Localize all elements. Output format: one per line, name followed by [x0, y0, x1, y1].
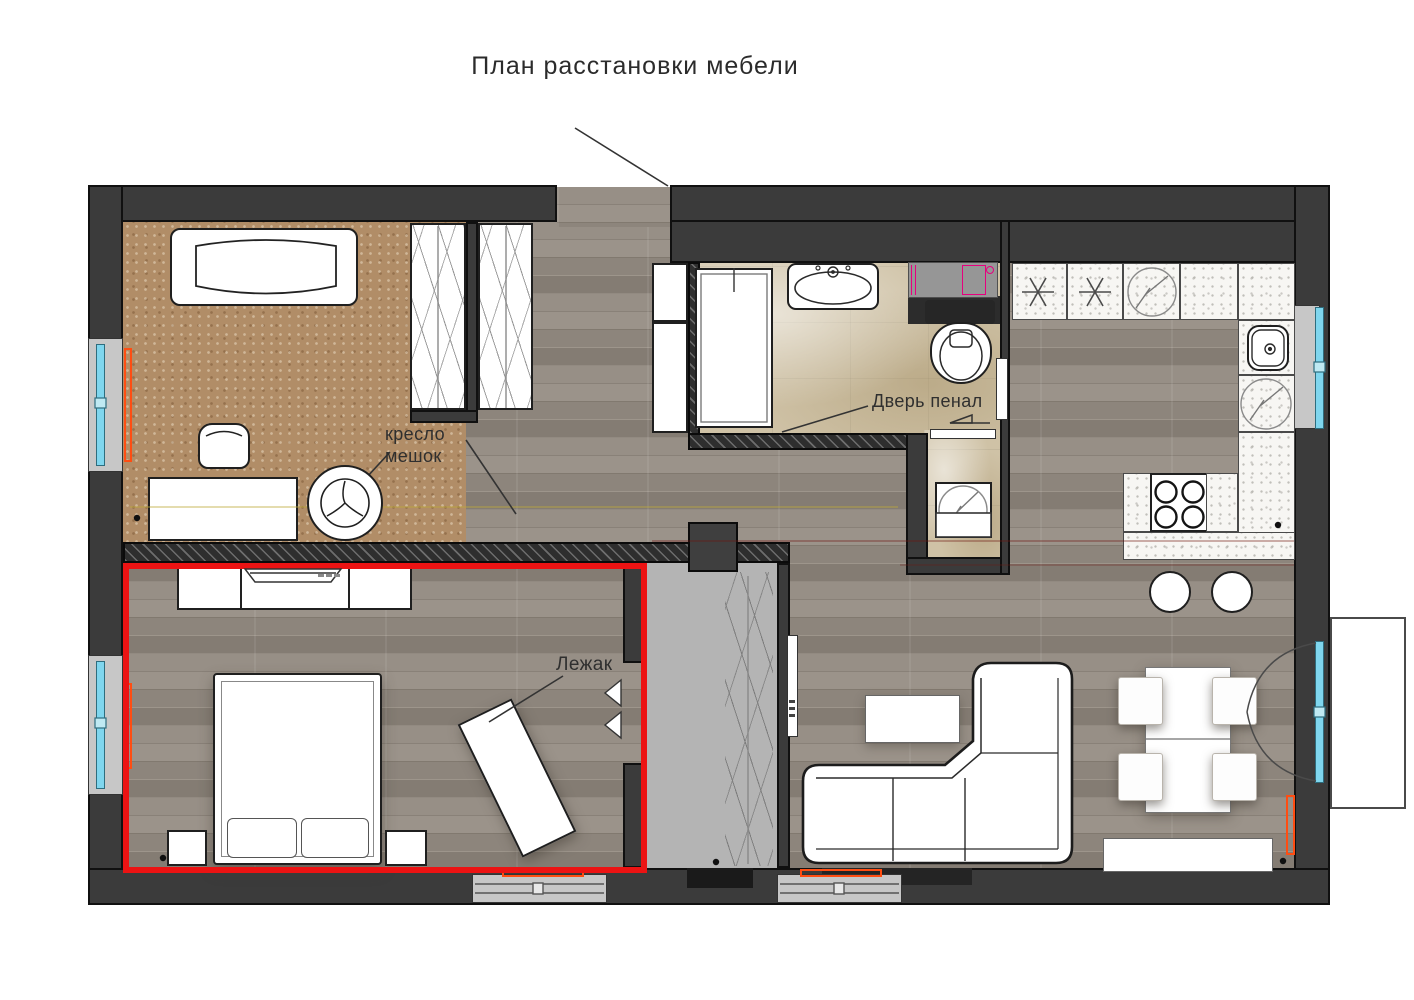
bar-stool-2: [1211, 571, 1253, 613]
bathroom-entry-door-panel: [996, 358, 1008, 420]
bottom-window-bedroom: [472, 874, 607, 903]
wall-bottom-closet-stub: [687, 868, 753, 888]
bean-bag-label: кресло мешок: [385, 424, 445, 468]
kitchen-counter-top-4: [1180, 263, 1238, 320]
dining-chair-4: [1212, 753, 1257, 801]
wall-tv: [787, 635, 798, 737]
wardrobe-hallway: [478, 223, 533, 410]
kitchen-counter-appliance: [1123, 263, 1180, 320]
dining-chair-2: [1212, 677, 1257, 725]
wall-bathroom-bottom: [688, 433, 918, 450]
kitchen-counter-stove-right: [1206, 473, 1238, 532]
office-chair: [198, 423, 250, 469]
wall-right: [1294, 185, 1330, 905]
bottom-radiator-living: [800, 869, 882, 877]
bar-stool-1: [1149, 571, 1191, 613]
page-title: План расстановки мебели: [455, 52, 815, 81]
office-sofa: [170, 228, 358, 306]
balcony: [1330, 617, 1406, 809]
bean-bag-label-line2: мешок: [385, 446, 445, 468]
closet-hanger-hatch: [725, 572, 773, 866]
sideboard: [1103, 838, 1273, 872]
wall-office-wardrobe-stub: [410, 410, 478, 423]
wall-niche-bottom: [906, 557, 1010, 575]
wall-office-right: [466, 222, 478, 423]
dining-chair-3: [1118, 753, 1163, 801]
entry-doorway-floor: [557, 187, 670, 227]
kitchen-window-glass: [1315, 307, 1324, 429]
structural-pillar: [688, 522, 738, 572]
floor-plan: План расстановки мебели кресло мешок Две…: [0, 0, 1414, 1000]
hall-cabinet-upper: [652, 263, 688, 322]
wall-niche-left: [906, 433, 928, 575]
kitchen-counter-fridge: [1012, 263, 1067, 320]
plumbing-valve: [986, 266, 994, 274]
dining-chair-1: [1118, 677, 1163, 725]
kitchen-counter-oven-unit: [1238, 375, 1295, 432]
washing-machine: [935, 482, 992, 538]
coffee-table: [865, 695, 960, 743]
pocket-door-label: Дверь пенал: [872, 391, 983, 413]
title-leader-line: [575, 128, 668, 186]
office-radiator: [124, 348, 132, 462]
living-radiator: [1286, 795, 1295, 855]
pocket-door-panel: [930, 429, 996, 439]
kitchen-counter-bottom-strip: [1123, 532, 1295, 560]
balcony-door-glass: [1315, 641, 1324, 783]
office-window-glass: [96, 344, 105, 466]
toilet-tank: [925, 300, 995, 324]
wall-top-left: [88, 185, 557, 222]
bottom-window-living: [777, 874, 902, 903]
stove: [1150, 473, 1208, 532]
bedroom-highlight-outline: [123, 563, 647, 873]
kitchen-counter-freezer: [1067, 263, 1123, 320]
bedroom-window-sill: [88, 655, 123, 795]
hall-cabinet-lower: [652, 322, 688, 433]
plumbing-box: [962, 265, 986, 295]
bean-bag-label-line1: кресло: [385, 424, 445, 446]
bedroom-window-glass: [96, 661, 105, 789]
kitchen-counter-stove-left: [1123, 473, 1152, 532]
kitchen-counter-top-5: [1238, 263, 1295, 320]
wardrobe-office: [410, 223, 466, 410]
office-window-sill: [88, 338, 123, 472]
lounger-label: Лежак: [556, 653, 612, 676]
wall-top-right: [670, 185, 1330, 222]
bathtub: [787, 263, 879, 310]
office-desk: [148, 477, 298, 541]
plumbing-line: [911, 265, 916, 295]
wall-left: [88, 185, 123, 905]
shower-enclosure: [695, 268, 773, 428]
kitchen-sink: [1247, 325, 1289, 371]
toilet-bowl: [930, 322, 992, 384]
